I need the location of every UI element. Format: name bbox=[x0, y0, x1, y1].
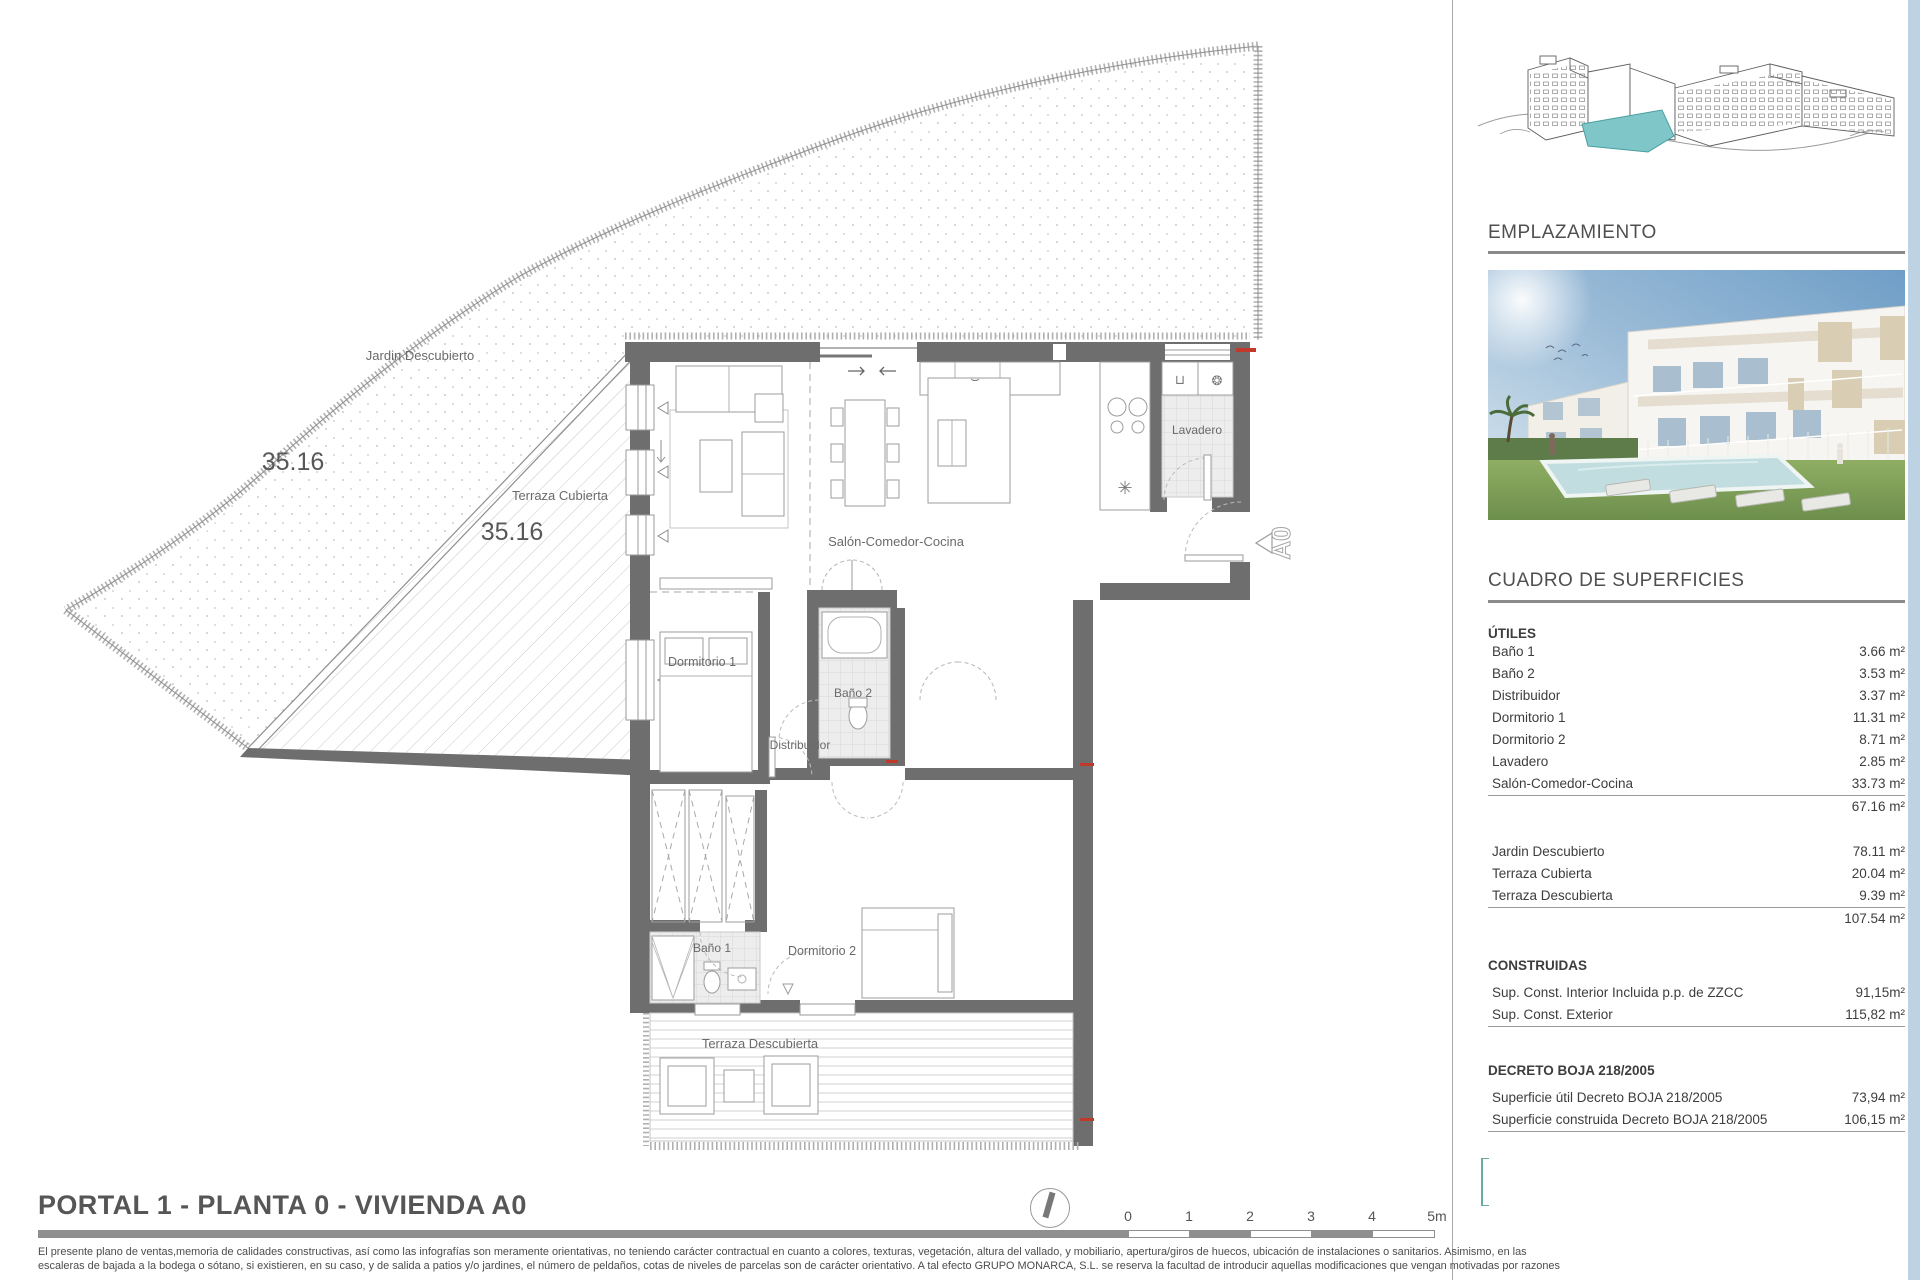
scale-label-5m: 5m bbox=[1427, 1208, 1446, 1224]
area-row: Jardin Descubierto78.11 m² bbox=[1488, 841, 1905, 863]
location-photo bbox=[1488, 270, 1905, 520]
label-terraza-cubierta: Terraza Cubierta bbox=[512, 488, 609, 503]
closets bbox=[652, 790, 754, 922]
surfaces-table: ÚTILES Baño 13.66 m²Baño 23.53 m²Distrib… bbox=[1488, 626, 1905, 1132]
area-row: Dormitorio 28.71 m² bbox=[1488, 729, 1905, 751]
plan-sheet: ⌣ ✳ ⊔ ❂ A0 bbox=[0, 0, 1920, 1280]
kitchen bbox=[920, 362, 1150, 510]
fan-icon: ❂ bbox=[1212, 373, 1223, 388]
sidebar-divider bbox=[1452, 0, 1453, 1280]
area-row: Superficie construida Decreto BOJA 218/2… bbox=[1488, 1109, 1905, 1131]
scale-label-0: 0 bbox=[1124, 1208, 1132, 1224]
page-edge-strip bbox=[1908, 0, 1920, 1280]
area-row: Superficie útil Decreto BOJA 218/200573,… bbox=[1488, 1087, 1905, 1109]
dormitorio2-furniture bbox=[768, 782, 954, 998]
label-distribuidor: Distribuidor bbox=[770, 738, 831, 752]
floor-plan: ⌣ ✳ ⊔ ❂ A0 bbox=[0, 0, 1452, 1280]
scale-seg-1-2 bbox=[1189, 1230, 1250, 1238]
label-jardin: Jardin Descubierto bbox=[366, 348, 474, 363]
utiles-subtotal: 67.16 m² bbox=[1488, 796, 1905, 818]
teal-bracket-mark bbox=[1481, 1158, 1489, 1206]
lavadero-window bbox=[1165, 344, 1230, 360]
label-terraza-cubierta-area: 35.16 bbox=[481, 518, 544, 546]
area-row: Sup. Const. Interior Incluida p.p. de ZZ… bbox=[1488, 982, 1905, 1004]
scale-seg-0-1 bbox=[1128, 1230, 1191, 1238]
exterior-rows: Jardin Descubierto78.11 m²Terraza Cubier… bbox=[1488, 841, 1905, 907]
area-row: Lavadero2.85 m² bbox=[1488, 751, 1905, 773]
scale-label-4: 4 bbox=[1368, 1208, 1376, 1224]
exterior-subtotal: 107.54 m² bbox=[1488, 908, 1905, 930]
dining-table bbox=[831, 400, 899, 506]
scale-seg-3-4 bbox=[1311, 1230, 1372, 1238]
disclaimer-line-1: El presente plano de ventas,memoria de c… bbox=[38, 1246, 1898, 1260]
area-row: Distribuidor3.37 m² bbox=[1488, 685, 1905, 707]
label-salon: Salón-Comedor-Cocina bbox=[828, 534, 965, 549]
sliding-door bbox=[820, 340, 917, 375]
glass-icon: ⌣ bbox=[970, 371, 980, 388]
decreto-line bbox=[1488, 1131, 1905, 1132]
area-row: Salón-Comedor-Cocina33.73 m² bbox=[1488, 773, 1905, 795]
bano2-room bbox=[779, 608, 890, 758]
scale-label-1: 1 bbox=[1185, 1208, 1193, 1224]
area-row: Baño 23.53 m² bbox=[1488, 663, 1905, 685]
area-row: Dormitorio 111.31 m² bbox=[1488, 707, 1905, 729]
utiles-subtotal-line: 67.16 m² bbox=[1488, 795, 1905, 818]
decreto-rows: Superficie útil Decreto BOJA 218/200573,… bbox=[1488, 1087, 1905, 1131]
label-terraza-descubierta: Terraza Descubierta bbox=[702, 1036, 819, 1051]
unit-marker: A0 bbox=[1256, 526, 1296, 559]
washbasin-icon: ⊔ bbox=[1175, 372, 1185, 387]
area-row: Baño 13.66 m² bbox=[1488, 641, 1905, 663]
dishwasher-icon: ✳ bbox=[1117, 478, 1132, 498]
construidas-rows: Sup. Const. Interior Incluida p.p. de ZZ… bbox=[1488, 982, 1905, 1026]
scale-seg-2-3 bbox=[1250, 1230, 1313, 1238]
svg-text:A0: A0 bbox=[1266, 526, 1296, 559]
label-bano1: Baño 1 bbox=[693, 941, 731, 955]
exterior-subtotal-line: 107.54 m² bbox=[1488, 907, 1905, 930]
label-jardin-area: 35.16 bbox=[262, 448, 325, 476]
label-bano2: Baño 2 bbox=[834, 686, 872, 700]
cuadro-rule bbox=[1488, 600, 1905, 603]
utiles-heading: ÚTILES bbox=[1488, 626, 1905, 641]
title-rule bbox=[38, 1230, 1128, 1238]
terraza-descubierta bbox=[646, 1004, 1080, 1146]
decreto-heading: DECRETO BOJA 218/2005 bbox=[1488, 1063, 1905, 1078]
area-row: Sup. Const. Exterior115,82 m² bbox=[1488, 1004, 1905, 1026]
sofa-set bbox=[670, 366, 788, 528]
label-dormitorio1: Dormitorio 1 bbox=[668, 655, 736, 669]
keyplan-axonometric bbox=[1470, 8, 1906, 188]
disclaimer-line-2: escaleras de bajada a la bodega o sótano… bbox=[38, 1260, 1898, 1274]
scale-seg-4-5 bbox=[1372, 1230, 1435, 1238]
label-dormitorio2: Dormitorio 2 bbox=[788, 944, 856, 958]
sheet-title: PORTAL 1 - PLANTA 0 - VIVIENDA A0 bbox=[38, 1190, 527, 1221]
cuadro-heading: CUADRO DE SUPERFICIES bbox=[1488, 570, 1744, 592]
construidas-heading: CONSTRUIDAS bbox=[1488, 958, 1905, 973]
label-lavadero: Lavadero bbox=[1172, 423, 1222, 437]
area-row: Terraza Cubierta20.04 m² bbox=[1488, 863, 1905, 885]
dorm2-door-gap bbox=[830, 766, 905, 782]
scale-label-3: 3 bbox=[1307, 1208, 1315, 1224]
kitchen-window bbox=[1053, 344, 1066, 360]
utiles-rows: Baño 13.66 m²Baño 23.53 m²Distribuidor3.… bbox=[1488, 641, 1905, 795]
scale-label-2: 2 bbox=[1246, 1208, 1254, 1224]
area-row: Terraza Descubierta9.39 m² bbox=[1488, 885, 1905, 907]
disclaimer-text: El presente plano de ventas,memoria de c… bbox=[38, 1246, 1898, 1273]
emplazamiento-heading: EMPLAZAMIENTO bbox=[1488, 222, 1657, 244]
emplazamiento-rule bbox=[1488, 251, 1905, 254]
